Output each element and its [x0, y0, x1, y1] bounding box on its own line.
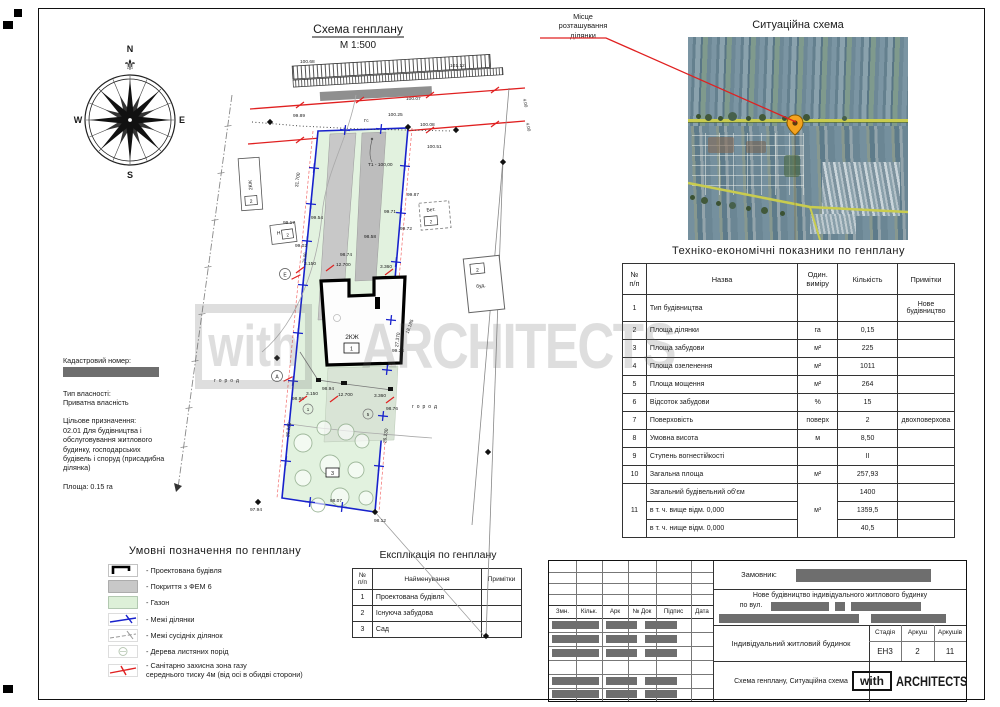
svg-text:98.12: 98.12 [374, 518, 386, 524]
fold-mark [3, 21, 13, 29]
teo-row: 5Площа мощенням²264 [623, 376, 955, 394]
tb-col-date: Дата [691, 608, 713, 615]
customer-redacted [796, 569, 931, 582]
address-redacted [851, 602, 921, 611]
cell: 0,15 [838, 322, 898, 340]
cell: 4 [623, 358, 647, 376]
svg-text:100.25: 100.25 [388, 112, 403, 118]
cell: 10 [623, 466, 647, 484]
redacted-name [606, 635, 637, 643]
cell: в т. ч. нище відм. 0,000 [646, 520, 797, 538]
neighbor-boundary-icon [108, 629, 138, 642]
cell: 257,93 [838, 466, 898, 484]
fleur-de-lis-icon: ⚜ [123, 57, 136, 74]
cell: м [798, 430, 838, 448]
cell [897, 520, 954, 538]
svg-text:100.08: 100.08 [420, 122, 435, 128]
redacted-name [552, 635, 599, 643]
sheets-value: 11 [934, 647, 966, 656]
redacted-signature [645, 677, 677, 685]
drawing-sheet: N ⚜ E W S [0, 0, 1000, 707]
teo-header-num: № п/п [623, 264, 647, 295]
cell: 1359,5 [838, 502, 898, 520]
plot-boundary-icon [108, 613, 138, 626]
compass-w-label: W [74, 115, 83, 125]
sheet-value: 2 [901, 647, 934, 656]
cell: Загальна площа [646, 466, 797, 484]
cell: 8,50 [838, 430, 898, 448]
logo-with-box: with [852, 671, 892, 691]
address-redacted [771, 602, 829, 611]
cell: в т. ч. вище відм. 0,000 [646, 502, 797, 520]
cell: га [798, 322, 838, 340]
logo-architects-text: ARCHITECTS [896, 674, 967, 689]
teo-row: 6Відсоток забудови%15 [623, 394, 955, 412]
cell [897, 502, 954, 520]
redacted-name [552, 649, 599, 657]
redacted-name [552, 677, 599, 685]
redacted-signature [645, 621, 677, 629]
object-name: Індивідуальний житловий будинок [715, 639, 867, 648]
cell: % [798, 394, 838, 412]
cell: Загальний будівельний об'єм [646, 484, 797, 502]
genplan-scale: М 1:500 [340, 40, 377, 51]
compass-s-label: S [127, 170, 133, 180]
sheet-label: Аркуш [901, 629, 934, 636]
cell: 225 [838, 340, 898, 358]
cell: 40,5 [838, 520, 898, 538]
gas-line-label: Гс [364, 118, 369, 123]
svg-text:99.24: 99.24 [392, 348, 404, 354]
genplan-drawing: Схема генплану М 1:500 100.68 101.12 100… [140, 15, 540, 640]
teo-row: 2Площа ділянкига0,15 [623, 322, 955, 340]
svg-text:31.700: 31.700 [294, 172, 302, 188]
genplan-title: Схема генплану [313, 22, 403, 36]
fold-mark [14, 9, 22, 17]
compass-n-label: N [127, 44, 134, 54]
svg-text:12.700: 12.700 [338, 392, 353, 398]
cell [798, 448, 838, 466]
tb-col-ark: Арк [602, 608, 628, 615]
svg-text:99.87: 99.87 [407, 192, 419, 198]
cell [897, 376, 954, 394]
cell: поверх [798, 412, 838, 430]
svg-text:98.74: 98.74 [340, 252, 352, 258]
cell: 1 [623, 295, 647, 322]
cell: 6 [623, 394, 647, 412]
legend-item: - Дерева листяних порід [108, 645, 363, 658]
gas-zone-width: 4.00 [522, 98, 529, 108]
cell: Площа забудови [646, 340, 797, 358]
svg-text:98.76: 98.76 [386, 406, 398, 412]
sheets-label: Аркушів [934, 629, 966, 636]
neighbor-building-right-label: буд. [476, 283, 486, 290]
callout-leader [530, 10, 810, 140]
cell: 2 [838, 412, 898, 430]
legend-item: - Санітарно захисна зона газу середнього… [108, 661, 363, 679]
axis-label: Е [283, 273, 287, 279]
teo-header-row: № п/п Назва Один. виміру Кількість Примі… [623, 264, 955, 295]
gas-zone-icon [108, 664, 138, 677]
address-redacted [871, 614, 946, 623]
cell: Площа озеленення [646, 358, 797, 376]
cell: Нове будівництво [897, 295, 954, 322]
svg-text:98.94: 98.94 [322, 386, 334, 392]
teo-row: 9Ступень вогнестійкостіII [623, 448, 955, 466]
cell: 15 [838, 394, 898, 412]
address-redacted [719, 614, 859, 623]
redacted-name [606, 677, 637, 685]
concrete-label: Бет. [426, 207, 436, 214]
redacted-name [606, 649, 637, 657]
project-line2-label: по вул. [735, 602, 767, 609]
legend-label: - Дерева листяних порід [146, 647, 228, 656]
teo-header-notes: Примітки [897, 264, 954, 295]
teo-row: 7Поверховістьповерх2двохповерхова [623, 412, 955, 430]
svg-text:99.02: 99.02 [295, 243, 307, 249]
axis-label: А [275, 375, 279, 381]
customer-label: Замовник: [729, 570, 789, 579]
cell [897, 484, 954, 502]
cell [798, 295, 838, 322]
teo-row: 8Умовна висотам8,50 [623, 430, 955, 448]
cell: 9 [623, 448, 647, 466]
teo-row: в т. ч. нище відм. 0,00040,5 [623, 520, 955, 538]
cell: 8 [623, 430, 647, 448]
cell: м² [798, 466, 838, 484]
cell: Умовна висота [646, 430, 797, 448]
cell: 1011 [838, 358, 898, 376]
cell: м² [798, 376, 838, 394]
tb-col-signature: Підпис [656, 608, 691, 615]
concrete-pad: Бет. 2 [419, 201, 451, 231]
teo-header-name: Назва [646, 264, 797, 295]
svg-text:12.700: 12.700 [336, 262, 351, 268]
building-label: 2КЖ [345, 334, 358, 341]
project-line1: Нове будівництво індивідуального житлово… [717, 592, 963, 599]
benchmark-label: Т1 - 100,00 [368, 162, 393, 168]
svg-text:99.17: 99.17 [283, 220, 295, 226]
svg-text:97.94: 97.94 [250, 507, 262, 513]
cell [897, 322, 954, 340]
cell: II [838, 448, 898, 466]
elevation-mark: 100.68 [300, 59, 315, 65]
teo-header-unit: Один. виміру [798, 264, 838, 295]
cell: Відсоток забудови [646, 394, 797, 412]
teo-row: в т. ч. вище відм. 0,0001359,5 [623, 502, 955, 520]
svg-text:99.72: 99.72 [400, 226, 412, 232]
tb-col-doc: № Док [628, 608, 656, 615]
svg-text:3.360: 3.360 [374, 393, 386, 399]
neighbor-building-left-label: 2КЖ [248, 179, 255, 190]
address-redacted [835, 602, 845, 611]
svg-text:99.71: 99.71 [384, 209, 396, 215]
firm-logo: with ARCHITECTS [869, 661, 966, 701]
neighbor-building-left: 2КЖ 2 [238, 157, 263, 210]
stage-value: ЕН3 [869, 647, 901, 656]
teo-row: 11Загальний будівельний об'ємм³1400 [623, 484, 955, 502]
cell: 264 [838, 376, 898, 394]
cell: Ступень вогнестійкості [646, 448, 797, 466]
cell: 3 [623, 340, 647, 358]
neighbor-building-right: 2 буд. [463, 255, 504, 312]
cell: 11 [623, 484, 647, 538]
cell [897, 394, 954, 412]
garden-area-label: город [412, 404, 440, 410]
teo-title: Техніко-економічні показники по генплану [622, 245, 955, 257]
cell: Поверховість [646, 412, 797, 430]
cell [838, 295, 898, 322]
building-ref: 1 [350, 347, 353, 353]
svg-text:99.54: 99.54 [311, 215, 323, 221]
cell: Площа ділянки [646, 322, 797, 340]
sheet-title: Схема генплану, Ситуаційна схема [715, 678, 867, 685]
cell: 7 [623, 412, 647, 430]
redacted-name [606, 621, 637, 629]
deciduous-trees-icon [108, 645, 138, 658]
fem-paving-icon [108, 580, 138, 593]
cell: м² [798, 340, 838, 358]
teo-header-qty: Кількість [838, 264, 898, 295]
redacted-name [606, 690, 637, 698]
cell: 1400 [838, 484, 898, 502]
cell: м³ [798, 484, 838, 538]
cell [897, 448, 954, 466]
svg-text:3.150: 3.150 [306, 391, 318, 397]
garden-ref: 3 [331, 471, 334, 477]
fold-mark [3, 685, 13, 693]
projected-building-icon [108, 564, 138, 577]
cell [897, 340, 954, 358]
redacted-name [552, 690, 599, 698]
teo-row: 4Площа озелененням²1011 [623, 358, 955, 376]
tb-col-kilk: Кільк. [576, 608, 602, 615]
svg-text:98.07: 98.07 [330, 498, 342, 504]
redacted-name [552, 621, 599, 629]
lawn-icon [108, 596, 138, 609]
redacted-signature [645, 635, 677, 643]
cell: м² [798, 358, 838, 376]
road-strip [292, 54, 503, 87]
cell: 2 [623, 322, 647, 340]
redacted-signature [645, 690, 677, 698]
elevation-mark: 101.12 [450, 63, 465, 69]
stage-label: Стадія [869, 629, 901, 636]
cell [897, 466, 954, 484]
teo-row: 3Площа забудовим²225 [623, 340, 955, 358]
title-block: Змн. Кільк. Арк № Док Підпис Дата Замовн… [548, 560, 967, 702]
svg-text:3.360: 3.360 [380, 264, 392, 270]
cell: двохповерхова [897, 412, 954, 430]
svg-text:18.185: 18.185 [405, 318, 416, 334]
svg-text:99.89: 99.89 [293, 113, 305, 119]
cell [897, 430, 954, 448]
garden-area-label: город [214, 378, 242, 384]
tb-col-zmn: Змн. [549, 608, 576, 615]
cell: 5 [623, 376, 647, 394]
cell [897, 358, 954, 376]
redacted-signature [645, 649, 677, 657]
teo-row: 1Тип будівництваНове будівництво [623, 295, 955, 322]
svg-text:100.51: 100.51 [427, 144, 442, 150]
teo-row: 10Загальна площам²257,93 [623, 466, 955, 484]
teo-table: № п/п Назва Один. виміру Кількість Примі… [622, 263, 955, 538]
cell: Площа мощення [646, 376, 797, 394]
cell: Тип будівництва [646, 295, 797, 322]
svg-text:98.58: 98.58 [364, 234, 376, 240]
legend-label: - Санітарно захисна зона газу середнього… [146, 661, 303, 679]
